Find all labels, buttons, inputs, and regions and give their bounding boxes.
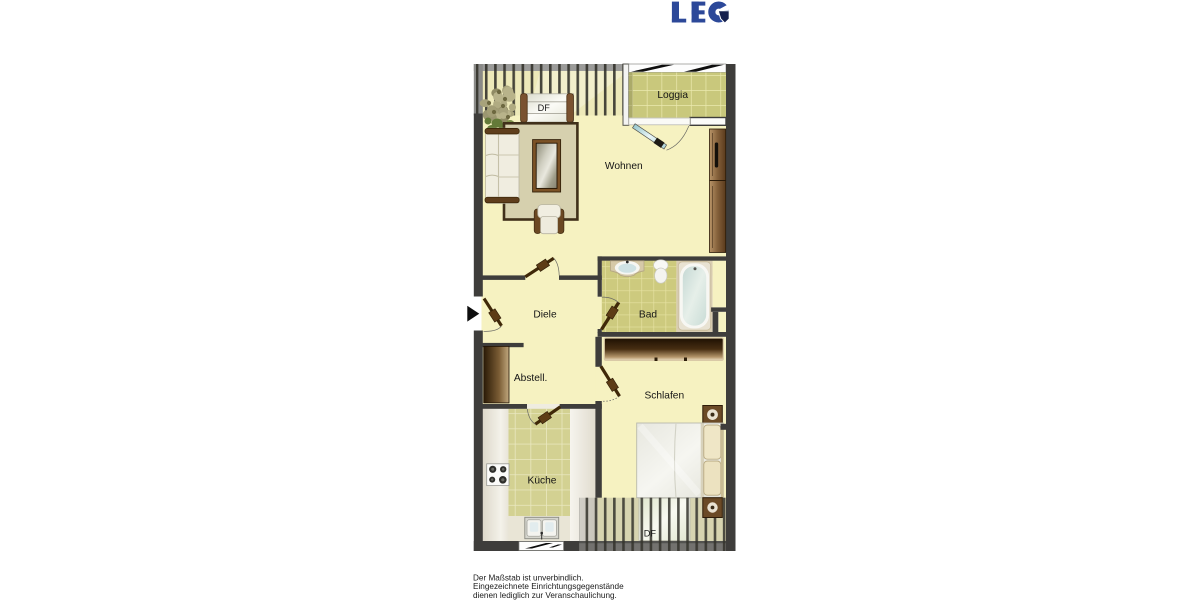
svg-text:Küche: Küche xyxy=(528,475,557,486)
svg-text:DF: DF xyxy=(538,103,551,113)
svg-text:DF: DF xyxy=(644,529,657,539)
svg-text:Schlafen: Schlafen xyxy=(644,390,684,401)
svg-text:Loggia: Loggia xyxy=(657,90,688,101)
svg-text:Diele: Diele xyxy=(533,310,557,321)
svg-text:Der Maßstab ist unverbindlich.: Der Maßstab ist unverbindlich. xyxy=(473,574,584,583)
svg-text:Abstell.: Abstell. xyxy=(514,373,547,384)
svg-text:dienen lediglich zur Veranscha: dienen lediglich zur Veranschaulichung. xyxy=(473,591,617,600)
svg-text:Bad: Bad xyxy=(639,310,657,321)
svg-text:Eingezeichnete Einrichtungsgeg: Eingezeichnete Einrichtungsgegenstände xyxy=(473,582,624,591)
svg-text:Wohnen: Wohnen xyxy=(605,161,643,172)
